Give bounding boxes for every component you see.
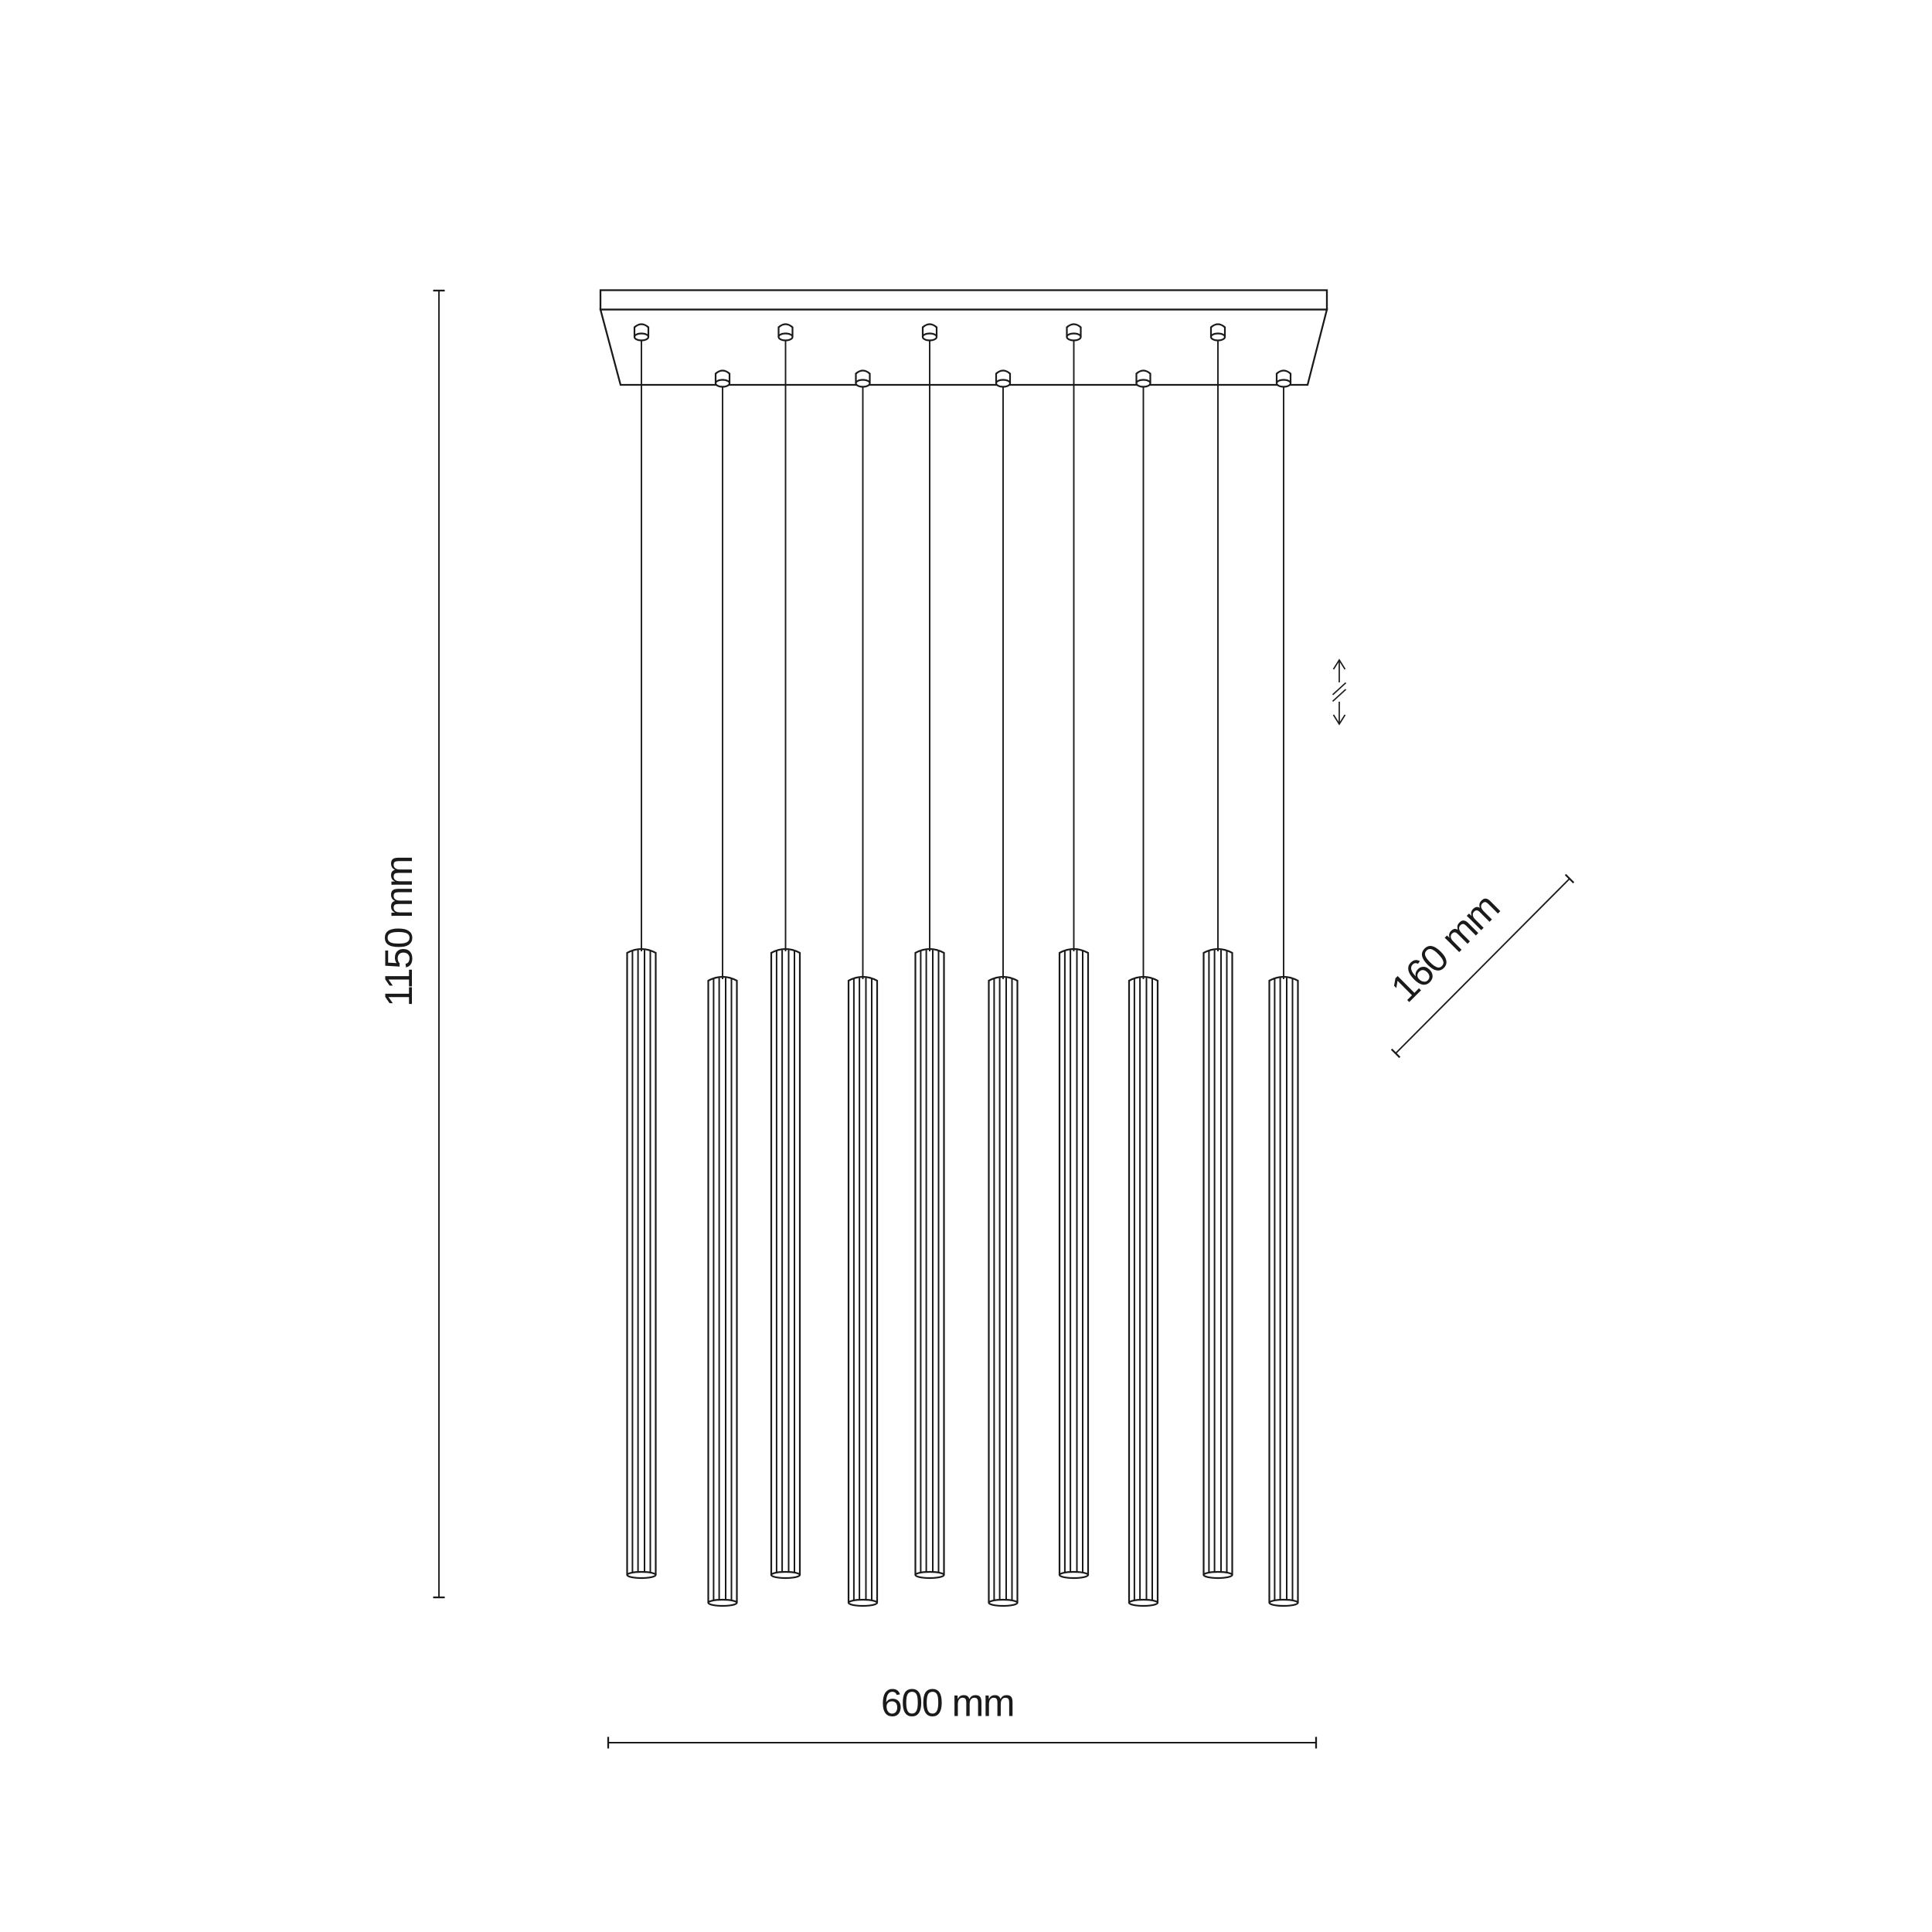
svg-text:1150 mm: 1150 mm bbox=[377, 856, 420, 1007]
svg-text:600 mm: 600 mm bbox=[881, 1682, 1014, 1725]
